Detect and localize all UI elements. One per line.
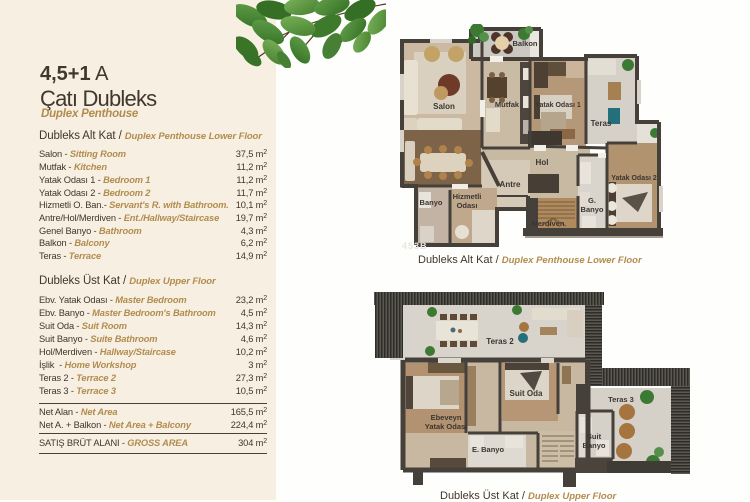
svg-text:Antre: Antre <box>500 180 521 189</box>
svg-text:Banyo: Banyo <box>581 205 604 214</box>
svg-text:Suit Oda: Suit Oda <box>510 389 543 398</box>
svg-text:Teras 3: Teras 3 <box>608 395 634 404</box>
svg-text:Salon: Salon <box>433 102 455 111</box>
svg-text:Yatak Odası: Yatak Odası <box>425 422 468 431</box>
svg-text:G.: G. <box>588 196 596 205</box>
svg-text:Ebeveyn: Ebeveyn <box>431 413 462 422</box>
svg-text:Teras 2: Teras 2 <box>486 337 514 346</box>
svg-text:E. Banyo: E. Banyo <box>472 445 505 454</box>
svg-text:Merdiven: Merdiven <box>532 219 565 228</box>
svg-text:Balkon: Balkon <box>512 39 537 48</box>
svg-text:Banyo: Banyo <box>420 198 443 207</box>
svg-text:Yatak Odası 1: Yatak Odası 1 <box>535 102 581 109</box>
svg-text:Teras: Teras <box>591 119 612 128</box>
svg-text:Mutfak: Mutfak <box>495 100 520 109</box>
svg-text:Hizmetli: Hizmetli <box>453 192 482 201</box>
svg-text:Hol: Hol <box>536 158 549 167</box>
svg-text:Suit: Suit <box>587 432 602 441</box>
svg-text:Banyo: Banyo <box>583 441 606 450</box>
svg-text:Odası: Odası <box>457 201 478 210</box>
svg-text:Yatak Odası 2: Yatak Odası 2 <box>611 175 657 182</box>
